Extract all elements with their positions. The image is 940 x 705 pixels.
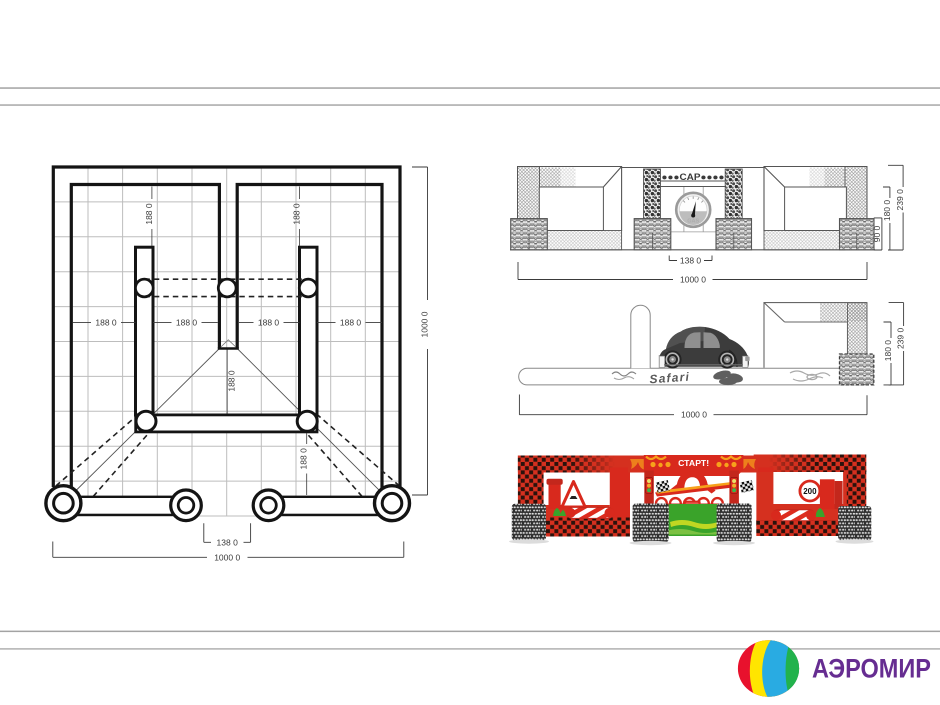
svg-text:1000 0: 1000 0 — [680, 275, 706, 285]
svg-text:1000 0: 1000 0 — [420, 311, 430, 337]
svg-text:138 0: 138 0 — [217, 537, 239, 547]
svg-text:188 0: 188 0 — [176, 318, 198, 328]
svg-text:188 0: 188 0 — [95, 318, 117, 328]
svg-text:GAS: GAS — [687, 219, 699, 225]
svg-text:АЭРОМИР: АЭРОМИР — [812, 654, 931, 684]
svg-text:200: 200 — [803, 487, 817, 496]
svg-text:180 0: 180 0 — [883, 340, 893, 362]
svg-text:188 0: 188 0 — [144, 203, 154, 225]
svg-text:239 0: 239 0 — [895, 189, 905, 211]
svg-text:180 0: 180 0 — [882, 200, 892, 222]
svg-text:188 0: 188 0 — [292, 203, 302, 225]
svg-text:СТАРТ!: СТАРТ! — [678, 458, 709, 468]
svg-text:Safari: Safari — [649, 370, 690, 387]
svg-text:138 0: 138 0 — [680, 256, 702, 266]
svg-text:188 0: 188 0 — [299, 448, 309, 470]
svg-text:90 0: 90 0 — [872, 225, 882, 242]
svg-text:188 0: 188 0 — [258, 318, 280, 328]
svg-text:1000 0: 1000 0 — [681, 410, 707, 420]
svg-text:1000 0: 1000 0 — [214, 552, 240, 562]
svg-text:239 0: 239 0 — [896, 327, 906, 349]
svg-text:188 0: 188 0 — [340, 318, 362, 328]
svg-text:188 0: 188 0 — [227, 370, 237, 392]
svg-text:●●●CAP●●●●: ●●●CAP●●●● — [662, 172, 725, 182]
